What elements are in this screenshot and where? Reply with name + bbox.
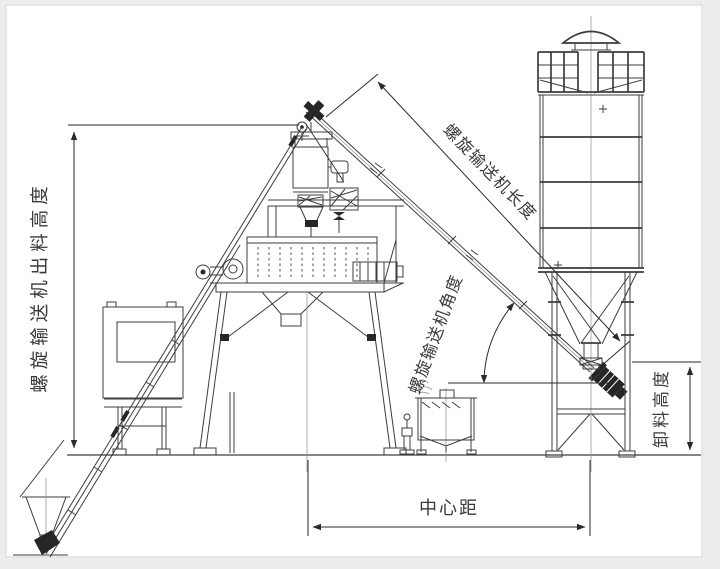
label-conveyor-discharge-height: 螺旋输送机出料高度: [30, 181, 51, 393]
scanned-drawing-page: 螺旋输送机出料高度 螺旋输送机长度 螺旋输送机角度 卸料高度 中心距: [0, 0, 720, 569]
plant-diagram: 螺旋输送机出料高度 螺旋输送机长度 螺旋输送机角度 卸料高度 中心距: [0, 0, 720, 569]
label-center-distance: 中心距: [419, 498, 479, 519]
label-unload-height: 卸料高度: [652, 368, 672, 448]
